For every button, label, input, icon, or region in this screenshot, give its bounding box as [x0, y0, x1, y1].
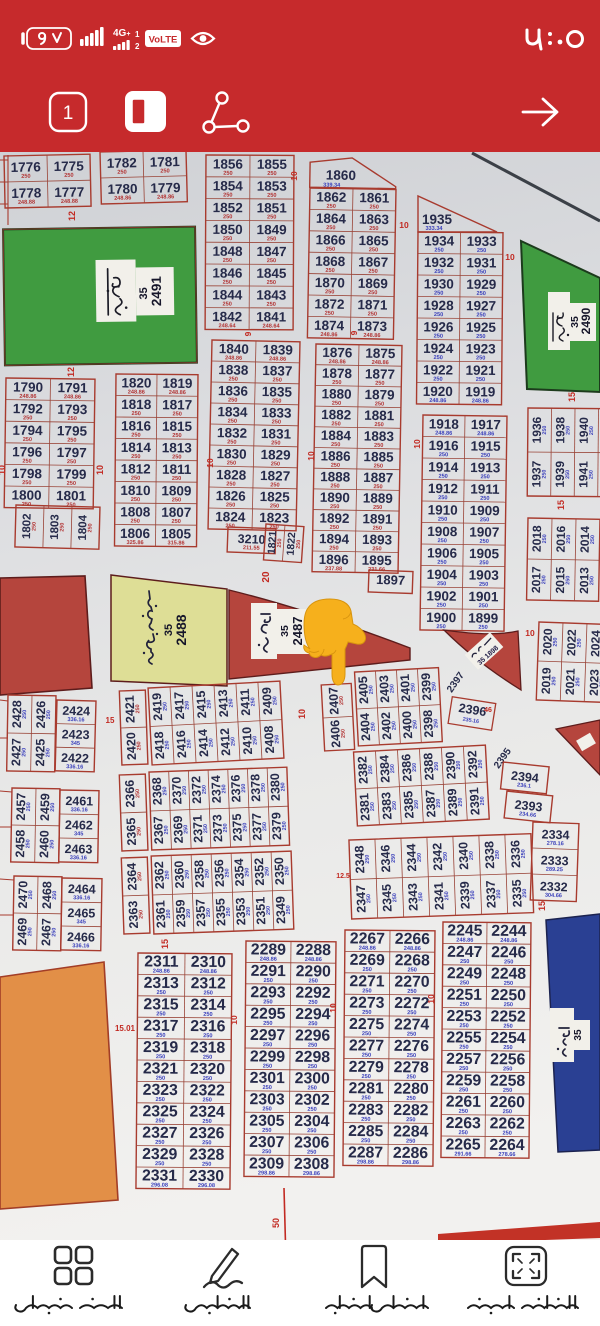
svg-text:250: 250 [407, 1010, 416, 1016]
svg-text:248.86: 248.86 [64, 394, 81, 400]
svg-text:250: 250 [437, 581, 446, 587]
svg-text:248.86: 248.86 [260, 957, 277, 963]
svg-text:2488: 2488 [173, 614, 189, 645]
svg-text:250: 250 [589, 470, 595, 479]
svg-text:1896: 1896 [319, 552, 350, 568]
svg-text:250: 250 [407, 967, 416, 973]
svg-text:250: 250 [203, 990, 212, 996]
svg-text:250: 250 [277, 538, 284, 547]
svg-text:1805: 1805 [161, 526, 192, 541]
svg-text:10: 10 [328, 1003, 338, 1013]
svg-text:1893: 1893 [362, 532, 393, 548]
svg-text:250: 250 [433, 377, 442, 383]
svg-text:250: 250 [202, 1140, 211, 1146]
svg-text:10: 10 [525, 628, 535, 638]
svg-text:1851: 1851 [257, 200, 288, 215]
svg-text:1820: 1820 [121, 375, 151, 390]
svg-text:250: 250 [479, 603, 488, 609]
svg-text:9: 9 [349, 330, 359, 335]
svg-text:250: 250 [551, 676, 557, 685]
svg-text:250: 250 [542, 470, 548, 479]
svg-text:250: 250 [361, 1138, 370, 1144]
svg-text:250: 250 [374, 422, 383, 428]
svg-text:250: 250 [496, 889, 502, 898]
svg-text:250: 250 [264, 867, 270, 876]
svg-text:250: 250 [23, 437, 32, 443]
svg-text:298.86: 298.86 [258, 1171, 275, 1177]
svg-text:250: 250 [204, 869, 210, 878]
svg-text:250: 250 [267, 171, 276, 177]
svg-text:250: 250 [434, 312, 443, 318]
svg-text:250: 250 [26, 802, 32, 811]
svg-text:250: 250 [228, 397, 237, 403]
svg-text:2463: 2463 [64, 842, 92, 856]
svg-text:250: 250 [436, 624, 445, 630]
svg-text:1881: 1881 [364, 408, 395, 424]
svg-text:250: 250 [156, 1054, 165, 1060]
svg-text:1927: 1927 [466, 298, 496, 313]
svg-text:250: 250 [206, 699, 212, 708]
svg-text:211.55: 211.55 [243, 545, 260, 552]
svg-text:250: 250 [172, 519, 181, 525]
svg-text:250: 250 [443, 852, 449, 861]
svg-text:12: 12 [67, 211, 77, 221]
svg-text:250: 250 [50, 803, 56, 812]
svg-text:248.86: 248.86 [114, 195, 131, 201]
svg-text:1829: 1829 [260, 447, 290, 463]
svg-text:250: 250 [407, 1053, 416, 1059]
svg-text:250: 250 [361, 1117, 370, 1123]
svg-text:250: 250 [373, 526, 382, 532]
svg-text:1907: 1907 [469, 524, 499, 539]
svg-text:1895: 1895 [362, 553, 393, 569]
svg-text:250: 250 [226, 907, 232, 916]
svg-text:250: 250 [308, 1085, 317, 1091]
svg-text:1824: 1824 [215, 509, 246, 525]
svg-text:250: 250 [476, 377, 485, 383]
svg-text:2462: 2462 [65, 818, 93, 832]
svg-text:250: 250 [460, 1002, 469, 1008]
svg-text:250: 250 [362, 967, 371, 973]
svg-text:250: 250 [183, 825, 189, 834]
svg-text:1813: 1813 [162, 440, 193, 455]
svg-text:1853: 1853 [257, 179, 288, 194]
svg-text:250: 250 [503, 1109, 512, 1115]
svg-text:1913: 1913 [470, 460, 501, 475]
svg-text:1911: 1911 [470, 481, 500, 496]
svg-text:250: 250 [241, 784, 247, 793]
svg-text:1931: 1931 [466, 255, 497, 270]
svg-text:250: 250 [252, 736, 258, 745]
svg-text:1812: 1812 [121, 461, 151, 476]
svg-text:250: 250 [184, 701, 190, 710]
svg-text:298.86: 298.86 [402, 1160, 419, 1166]
svg-text:10: 10 [229, 1015, 239, 1025]
svg-text:250: 250 [478, 759, 484, 768]
svg-text:250: 250 [202, 1119, 211, 1125]
svg-text:250: 250 [436, 798, 442, 807]
svg-text:250: 250 [392, 893, 398, 902]
svg-text:250: 250 [267, 280, 276, 286]
svg-text:248.86: 248.86 [200, 969, 217, 975]
svg-text:336.16: 336.16 [70, 855, 87, 861]
svg-text:1856: 1856 [213, 157, 244, 172]
svg-text:1806: 1806 [120, 526, 151, 541]
svg-text:1934: 1934 [424, 233, 455, 248]
svg-text:1843: 1843 [256, 288, 287, 303]
svg-text:1899: 1899 [468, 610, 498, 625]
svg-text:250: 250 [469, 851, 475, 860]
svg-text:12: 12 [66, 367, 76, 377]
svg-text:250: 250 [479, 582, 488, 588]
svg-text:1781: 1781 [150, 154, 181, 170]
svg-text:250: 250 [362, 988, 371, 994]
svg-text:250: 250 [164, 740, 170, 749]
svg-text:250: 250 [66, 502, 75, 508]
svg-text:250: 250 [270, 482, 279, 488]
svg-text:1846: 1846 [212, 266, 243, 281]
svg-text:250: 250 [326, 204, 335, 210]
svg-text:237.88: 237.88 [325, 566, 342, 572]
svg-text:1: 1 [63, 103, 74, 124]
svg-text:250: 250 [202, 785, 208, 794]
svg-text:1847: 1847 [256, 244, 286, 259]
svg-text:250: 250 [566, 535, 572, 544]
svg-text:250: 250 [224, 868, 230, 877]
svg-text:1827: 1827 [260, 468, 290, 484]
svg-text:250: 250 [263, 1042, 272, 1048]
svg-text:250: 250 [186, 739, 192, 748]
svg-text:250: 250 [521, 849, 527, 858]
svg-text:250: 250 [407, 1032, 416, 1038]
svg-text:1879: 1879 [364, 387, 394, 403]
svg-text:250: 250 [22, 480, 31, 486]
svg-text:250: 250 [223, 214, 232, 220]
svg-text:250: 250 [272, 377, 281, 383]
svg-text:250: 250 [131, 519, 140, 525]
svg-text:1823: 1823 [259, 510, 290, 526]
svg-text:1872: 1872 [314, 296, 344, 312]
svg-text:1868: 1868 [315, 254, 346, 270]
svg-text:250: 250 [230, 737, 236, 746]
svg-text:250: 250 [369, 247, 378, 253]
svg-text:250: 250 [326, 225, 335, 231]
svg-text:248.86: 248.86 [477, 431, 494, 437]
svg-text:15: 15 [556, 500, 566, 510]
svg-text:250: 250 [392, 801, 398, 810]
svg-text:250: 250 [184, 870, 190, 879]
svg-text:250: 250 [565, 576, 571, 585]
svg-text:250: 250 [226, 502, 235, 508]
svg-text:250: 250 [541, 575, 547, 584]
svg-text:250: 250 [330, 504, 339, 510]
svg-text:248.64: 248.64 [263, 323, 281, 329]
svg-text:345: 345 [71, 741, 80, 747]
svg-text:250: 250 [362, 1010, 371, 1016]
svg-text:333.34: 333.34 [425, 226, 443, 232]
svg-text:1919: 1919 [465, 384, 495, 399]
svg-text:250: 250 [308, 1021, 317, 1027]
svg-text:1915: 1915 [470, 438, 501, 453]
svg-text:250: 250 [503, 1088, 512, 1094]
svg-text:250: 250 [308, 1043, 317, 1049]
svg-text:250: 250 [375, 401, 384, 407]
svg-text:1886: 1886 [320, 448, 351, 464]
svg-text:250: 250 [166, 909, 172, 918]
svg-text:1870: 1870 [315, 275, 345, 291]
svg-text:250: 250 [228, 698, 234, 707]
svg-text:336.16: 336.16 [66, 764, 83, 770]
svg-text:250: 250 [368, 765, 374, 774]
svg-text:248.86: 248.86 [157, 194, 174, 200]
svg-text:1779: 1779 [150, 180, 180, 196]
svg-text:1837: 1837 [262, 363, 292, 379]
svg-text:250: 250 [477, 248, 486, 254]
svg-text:250: 250 [307, 1107, 316, 1113]
svg-text:250: 250 [203, 1033, 212, 1039]
svg-text:250: 250 [271, 461, 280, 467]
svg-text:VoLTE: VoLTE [149, 35, 178, 46]
svg-text:248.88: 248.88 [61, 199, 78, 205]
svg-text:250: 250 [438, 495, 447, 501]
svg-text:248.86: 248.86 [329, 359, 346, 365]
svg-text:250: 250 [438, 474, 447, 480]
svg-text:250: 250 [460, 980, 469, 986]
svg-text:1801: 1801 [56, 488, 87, 503]
svg-text:250: 250 [67, 459, 76, 465]
svg-text:50: 50 [271, 1218, 281, 1228]
svg-text:1841: 1841 [256, 309, 287, 324]
svg-text:250: 250 [362, 1074, 371, 1080]
svg-text:250: 250 [156, 1011, 165, 1017]
svg-text:250: 250 [223, 301, 232, 307]
svg-text:15: 15 [160, 939, 170, 949]
svg-text:1794: 1794 [12, 423, 43, 438]
svg-text:250: 250 [131, 411, 140, 417]
svg-text:250: 250 [267, 193, 276, 199]
svg-text:315.86: 315.86 [167, 540, 184, 546]
svg-text:250: 250 [156, 990, 165, 996]
svg-text:250: 250 [223, 258, 232, 264]
svg-text:1924: 1924 [423, 341, 454, 356]
svg-text:248.86: 248.86 [363, 333, 380, 339]
svg-text:250: 250 [286, 905, 292, 914]
svg-text:250: 250 [502, 1131, 511, 1137]
svg-text:1932: 1932 [424, 255, 454, 270]
svg-text:1840: 1840 [219, 341, 249, 357]
svg-text:250: 250 [361, 1095, 370, 1101]
svg-text:250: 250 [479, 560, 488, 566]
svg-text:250: 250 [330, 483, 339, 489]
svg-text:1790: 1790 [13, 380, 43, 395]
svg-text:250: 250 [156, 1097, 165, 1103]
svg-text:250: 250 [362, 1031, 371, 1037]
svg-text:250: 250 [22, 710, 28, 719]
svg-text:250: 250 [164, 870, 170, 879]
svg-text:250: 250 [31, 522, 37, 531]
svg-text:250: 250 [131, 454, 140, 460]
svg-text:1860: 1860 [326, 167, 356, 183]
svg-text:250: 250 [162, 786, 168, 795]
svg-text:1882: 1882 [321, 407, 351, 423]
svg-text:250: 250 [172, 433, 181, 439]
svg-text:250: 250 [67, 481, 76, 487]
svg-text:250: 250 [262, 822, 268, 831]
svg-text:250: 250 [162, 702, 168, 711]
svg-text:250: 250 [375, 381, 384, 387]
svg-text:250: 250 [223, 192, 232, 198]
svg-text:1914: 1914 [428, 459, 459, 474]
svg-text:250: 250 [470, 890, 476, 899]
svg-text:250: 250 [459, 1087, 468, 1093]
svg-text:248.86: 248.86 [153, 969, 170, 975]
svg-text:250: 250 [262, 1106, 271, 1112]
svg-text:336.16: 336.16 [73, 895, 90, 901]
svg-text:298.86: 298.86 [303, 1171, 320, 1177]
svg-text:250: 250 [64, 173, 73, 179]
svg-text:250: 250 [329, 545, 338, 551]
svg-text:250: 250 [228, 376, 237, 382]
svg-text:250: 250 [117, 170, 126, 176]
svg-text:250: 250 [263, 999, 272, 1005]
svg-text:10: 10 [306, 451, 316, 461]
svg-text:250: 250 [261, 783, 267, 792]
svg-text:15.01: 15.01 [115, 1024, 136, 1033]
svg-text:250: 250 [52, 891, 58, 900]
svg-text:248.86: 248.86 [456, 938, 473, 944]
svg-text:1930: 1930 [424, 276, 454, 291]
svg-text:250: 250 [368, 685, 374, 694]
svg-text:250: 250 [172, 497, 181, 503]
svg-text:250: 250 [325, 268, 334, 274]
svg-text:1897: 1897 [376, 572, 405, 588]
svg-text:1904: 1904 [427, 567, 458, 582]
svg-text:250: 250 [67, 416, 76, 422]
svg-text:1926: 1926 [423, 319, 454, 334]
svg-text:250: 250 [172, 454, 181, 460]
svg-text:250: 250 [296, 540, 303, 549]
svg-text:10: 10 [0, 465, 7, 475]
svg-text:250: 250 [203, 1055, 212, 1061]
svg-text:10: 10 [289, 171, 299, 181]
svg-text:250: 250 [372, 546, 381, 552]
svg-text:336.16: 336.16 [71, 807, 88, 813]
svg-text:1854: 1854 [213, 178, 244, 193]
svg-text:1830: 1830 [216, 446, 246, 462]
svg-text:250: 250 [434, 269, 443, 275]
svg-text:250: 250 [160, 168, 169, 174]
svg-text:15: 15 [537, 901, 547, 911]
svg-text:2490: 2490 [579, 307, 593, 334]
svg-text:250: 250 [339, 696, 345, 705]
svg-text:1782: 1782 [107, 155, 137, 171]
svg-text:1835: 1835 [262, 384, 293, 400]
svg-text:1828: 1828 [216, 467, 247, 483]
svg-text:250: 250 [22, 459, 31, 465]
svg-text:250: 250 [325, 311, 334, 317]
svg-text:250: 250 [390, 764, 396, 773]
svg-text:1892: 1892 [319, 510, 349, 526]
svg-text:1877: 1877 [365, 366, 395, 382]
svg-text:2491: 2491 [149, 276, 164, 307]
svg-text:1815: 1815 [162, 419, 193, 434]
svg-text:248.86: 248.86 [269, 356, 286, 362]
svg-text:325.86: 325.86 [126, 540, 143, 546]
svg-text:250: 250 [221, 784, 227, 793]
svg-text:250: 250 [417, 853, 423, 862]
svg-text:250: 250 [250, 697, 256, 706]
svg-text:250: 250 [434, 248, 443, 254]
svg-text:1894: 1894 [319, 531, 350, 547]
svg-text:1875: 1875 [365, 346, 396, 362]
svg-text:250: 250 [267, 215, 276, 221]
svg-text:248.86: 248.86 [500, 938, 517, 944]
svg-text:250: 250 [164, 825, 170, 834]
svg-text:20: 20 [261, 571, 272, 583]
svg-text:1834: 1834 [217, 404, 248, 420]
svg-text:1839: 1839 [263, 342, 293, 358]
svg-text:250: 250 [225, 523, 234, 529]
svg-text:1844: 1844 [212, 287, 243, 302]
svg-text:250: 250 [242, 823, 248, 832]
svg-text:248.86: 248.86 [429, 398, 446, 404]
svg-text:1928: 1928 [424, 298, 455, 313]
svg-text:248.86: 248.86 [19, 394, 36, 400]
svg-text:250: 250 [476, 355, 485, 361]
svg-text:250: 250 [476, 334, 485, 340]
svg-text:10: 10 [426, 994, 436, 1004]
svg-text:250: 250 [155, 1140, 164, 1146]
svg-text:250: 250 [307, 1150, 316, 1156]
svg-text:250: 250 [503, 1066, 512, 1072]
svg-text:1865: 1865 [358, 233, 389, 249]
svg-text:1778: 1778 [11, 185, 42, 201]
svg-text:250: 250 [262, 1149, 271, 1155]
svg-text:1: 1 [135, 30, 140, 39]
svg-text:250: 250 [438, 517, 447, 523]
svg-text:1861: 1861 [359, 190, 390, 206]
svg-text:1908: 1908 [427, 524, 458, 539]
svg-text:1890: 1890 [320, 490, 350, 506]
svg-text:2465: 2465 [67, 906, 95, 920]
svg-text:250: 250 [186, 909, 192, 918]
svg-text:250: 250 [280, 782, 286, 791]
svg-text:250: 250 [87, 523, 93, 532]
svg-text:1848: 1848 [212, 244, 243, 259]
svg-text:250: 250 [407, 989, 416, 995]
svg-text:1852: 1852 [213, 200, 243, 215]
svg-text:1798: 1798 [12, 466, 43, 481]
svg-text:250: 250 [503, 1024, 512, 1030]
svg-text:10: 10 [297, 709, 307, 719]
svg-text:1921: 1921 [465, 363, 496, 378]
svg-text:250: 250 [369, 204, 378, 210]
svg-text:1814: 1814 [121, 440, 152, 455]
svg-text:250: 250 [439, 452, 448, 458]
svg-text:250: 250 [263, 1085, 272, 1091]
svg-text:250: 250 [308, 1000, 317, 1006]
svg-text:345: 345 [74, 831, 83, 837]
svg-text:1855: 1855 [257, 157, 288, 172]
svg-text:1891: 1891 [362, 511, 393, 527]
svg-text:12.5: 12.5 [336, 873, 350, 880]
svg-text:1935: 1935 [422, 212, 453, 227]
svg-text:2461: 2461 [65, 794, 93, 808]
svg-text:250: 250 [374, 463, 383, 469]
svg-text:10: 10 [412, 439, 422, 449]
svg-text:250: 250 [478, 625, 487, 631]
svg-text:250: 250 [46, 710, 52, 719]
